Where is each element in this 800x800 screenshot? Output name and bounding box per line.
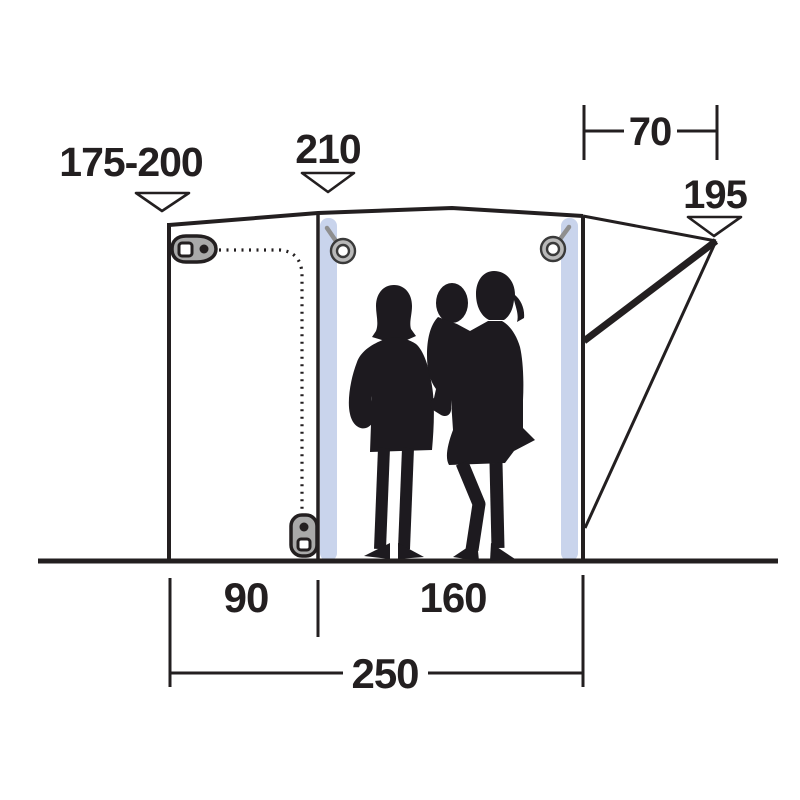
- dim-label-front-panel-width: 90: [224, 577, 269, 619]
- zipper-track: [219, 250, 302, 514]
- dim-label-rear-height: 195: [683, 175, 747, 215]
- adult1-leg-right: [404, 448, 408, 549]
- toggle-rings: [327, 227, 569, 263]
- adult2-body: [427, 317, 535, 465]
- child-head: [436, 283, 468, 323]
- tunnel-guy-line: [585, 241, 716, 528]
- arrow-triangle-rear-icon: [688, 217, 741, 236]
- awning-dimension-diagram: 175-200 210 70 195 90 160 250: [0, 0, 800, 800]
- adult2-leg-front: [462, 463, 479, 550]
- arrow-triangle-mid-icon: [302, 173, 354, 192]
- dim-label-total-width: 250: [351, 653, 418, 695]
- dim-label-front-height: 175-200: [59, 142, 202, 183]
- adult1-body: [349, 338, 434, 452]
- dim-label-rear-depth: 70: [629, 112, 672, 152]
- pole-right: [561, 218, 578, 561]
- family-silhouette: [349, 271, 535, 561]
- rear-tunnel: [583, 216, 716, 528]
- arrow-triangle-front-icon: [136, 193, 189, 211]
- dim-label-mid-height: 210: [295, 129, 360, 170]
- zipper-pulls: [172, 236, 317, 556]
- adult1-leg-left: [380, 448, 384, 549]
- adult2-head: [476, 271, 524, 322]
- adult1-head: [372, 285, 416, 342]
- tunnel-pole-line: [584, 241, 716, 341]
- zipper-pull-bottom-icon: [291, 515, 317, 556]
- roof-line: [169, 208, 583, 225]
- pole-left: [320, 218, 337, 561]
- zipper-pull-top-icon: [172, 236, 216, 262]
- adult2-foot-front: [453, 541, 479, 561]
- adult2-leg-back: [496, 463, 498, 548]
- adult1-foot-right: [398, 543, 424, 559]
- dim-label-main-panel-width: 160: [419, 577, 486, 619]
